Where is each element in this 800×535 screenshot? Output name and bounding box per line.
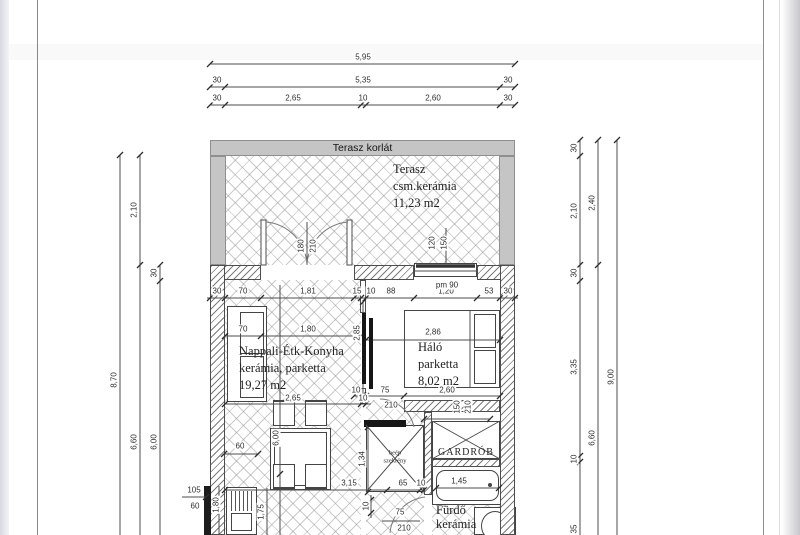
wall-left <box>210 265 225 535</box>
closet-label-line2: szekrény <box>382 457 407 466</box>
drawing-frame-right-line <box>763 0 764 535</box>
dim-room-len: 6,00 <box>272 429 281 447</box>
dim-wall: 30 <box>503 76 514 85</box>
bed-pillow <box>474 314 496 348</box>
dim-total-height: 9,00 <box>607 368 616 386</box>
living-area: 19,27 m2 <box>239 377 286 394</box>
dim-gap: 10 <box>416 479 427 488</box>
dim-bedroom-depth: 3,35 <box>570 358 579 376</box>
dim-railing: 30 <box>570 143 579 154</box>
drawing-frame-left-line <box>37 0 38 535</box>
dim-gap: 10 <box>351 386 362 395</box>
dim-total-width: 5,95 <box>354 53 372 62</box>
dim-seg: 88 <box>386 287 397 296</box>
dim-table: 3,15 <box>340 479 358 488</box>
dim-wardrobe-h: 210 <box>464 399 473 414</box>
bedroom-area: 8,02 m2 <box>418 373 459 390</box>
dim-pass: 10 <box>362 501 371 512</box>
kitchen-sink <box>231 513 252 531</box>
dim-tub-len: 1,45 <box>450 477 468 486</box>
dim-wall: 30 <box>503 287 514 296</box>
bathroom-finish: kerámia <box>436 516 476 533</box>
dim-bedroom-width: 2,60 <box>424 94 442 103</box>
dim-total-height: 8,70 <box>110 371 119 389</box>
living-name: Nappali-Étk-Konyha <box>239 343 344 360</box>
bedroom-name: Háló <box>418 339 442 356</box>
scan-artifact-band <box>9 44 763 60</box>
dim-interior-depth: 6,00 <box>150 433 159 451</box>
terrace-railing-right <box>499 156 515 265</box>
dim-wall: 30 <box>150 268 159 279</box>
floor-plan-page: Terasz korlát <box>0 0 800 535</box>
dim-bathdoor-w: 75 <box>395 508 406 517</box>
living-finish: kerámia, parketta <box>239 360 326 377</box>
dim-wall: 30 <box>503 94 514 103</box>
chair <box>305 464 327 489</box>
dim-counter: 60 <box>235 442 246 451</box>
dim-seg: 1,81 <box>299 287 317 296</box>
bathtub-drain <box>488 483 492 487</box>
dim-door-h: 210 <box>383 401 398 410</box>
chair <box>273 464 295 489</box>
dim-terrace-depth: 2,10 <box>130 201 139 219</box>
dim-seg: 70 <box>238 287 249 296</box>
terrace-area: 11,23 m2 <box>393 195 440 212</box>
dim-bathdoor-h: 210 <box>396 524 411 533</box>
dim-seg: 10 <box>366 287 377 296</box>
dim-niche: 105 <box>186 486 201 495</box>
terrace-railing: Terasz korlát <box>210 140 515 156</box>
dim-partition: 10 <box>358 94 369 103</box>
terrace-railing-label: Terasz korlát <box>333 142 393 154</box>
scrollbar-track[interactable] <box>782 0 800 535</box>
bedroom-finish: parketta <box>418 356 458 373</box>
terrace-name: Terasz <box>393 161 425 178</box>
wall-pier-kitchen <box>204 486 211 535</box>
dim-living-h: 2,85 <box>353 324 362 342</box>
wall-right <box>500 265 515 535</box>
page-edge-line <box>779 0 780 535</box>
wardrobe-name: GARDRÓB <box>438 444 494 461</box>
dim-wall: 30 <box>212 76 223 85</box>
terrace-finish: csm.kerámia <box>393 178 457 195</box>
partition-upper <box>360 280 366 313</box>
dim-terrace-total: 2,40 <box>588 194 597 212</box>
dim-seg: 15 <box>352 287 363 296</box>
dim-wardrobe-w: 150 <box>453 399 462 414</box>
dim-window-h: 150 <box>440 235 449 250</box>
dim-segment: 35 <box>570 524 579 535</box>
dim-niche: 60 <box>190 502 201 511</box>
chair <box>305 400 327 426</box>
wall-top-middle <box>354 265 414 280</box>
page-left-margin-strip <box>0 0 9 535</box>
terrace-railing-left <box>210 156 226 265</box>
dim-kitchen: 1,75 <box>257 503 266 521</box>
dim-gap: 10 <box>358 394 369 403</box>
dim-wall: 30 <box>570 268 579 279</box>
dim-living-width: 2,65 <box>284 94 302 103</box>
dim-bed-width: 2,86 <box>424 328 442 337</box>
dim-inner-width: 5,35 <box>354 76 372 85</box>
dim-terrace-door-h: 210 <box>309 238 318 253</box>
dim-seg: 53 <box>484 287 495 296</box>
dim-closet-h: 1,34 <box>358 450 367 468</box>
dim-sill-height: pm 90 <box>435 281 459 290</box>
dim-closet-w: 65 <box>398 479 409 488</box>
dim-house-depth: 6,60 <box>130 433 139 451</box>
dim-door-w: 75 <box>380 386 391 395</box>
dim-living-b: 2,65 <box>284 394 302 403</box>
dim-wall: 30 <box>212 94 223 103</box>
terrace-window <box>414 263 477 277</box>
dim-terrace-door-w: 180 <box>297 238 306 253</box>
dim-seg: 30 <box>212 287 223 296</box>
dim-sofa: 70 <box>238 325 249 334</box>
terrace-floor <box>226 156 499 265</box>
dim-partition: 10 <box>570 454 579 465</box>
chair <box>273 400 295 426</box>
dim-house-depth: 6,60 <box>588 429 597 447</box>
dim-living: 1,80 <box>299 325 317 334</box>
dim-terrace: 2,10 <box>570 202 579 220</box>
bed-pillow <box>474 350 496 384</box>
dim-window-w: 120 <box>428 235 437 250</box>
dim-kitchen: 1,80 <box>212 496 221 514</box>
kitchen-stove <box>231 491 252 511</box>
